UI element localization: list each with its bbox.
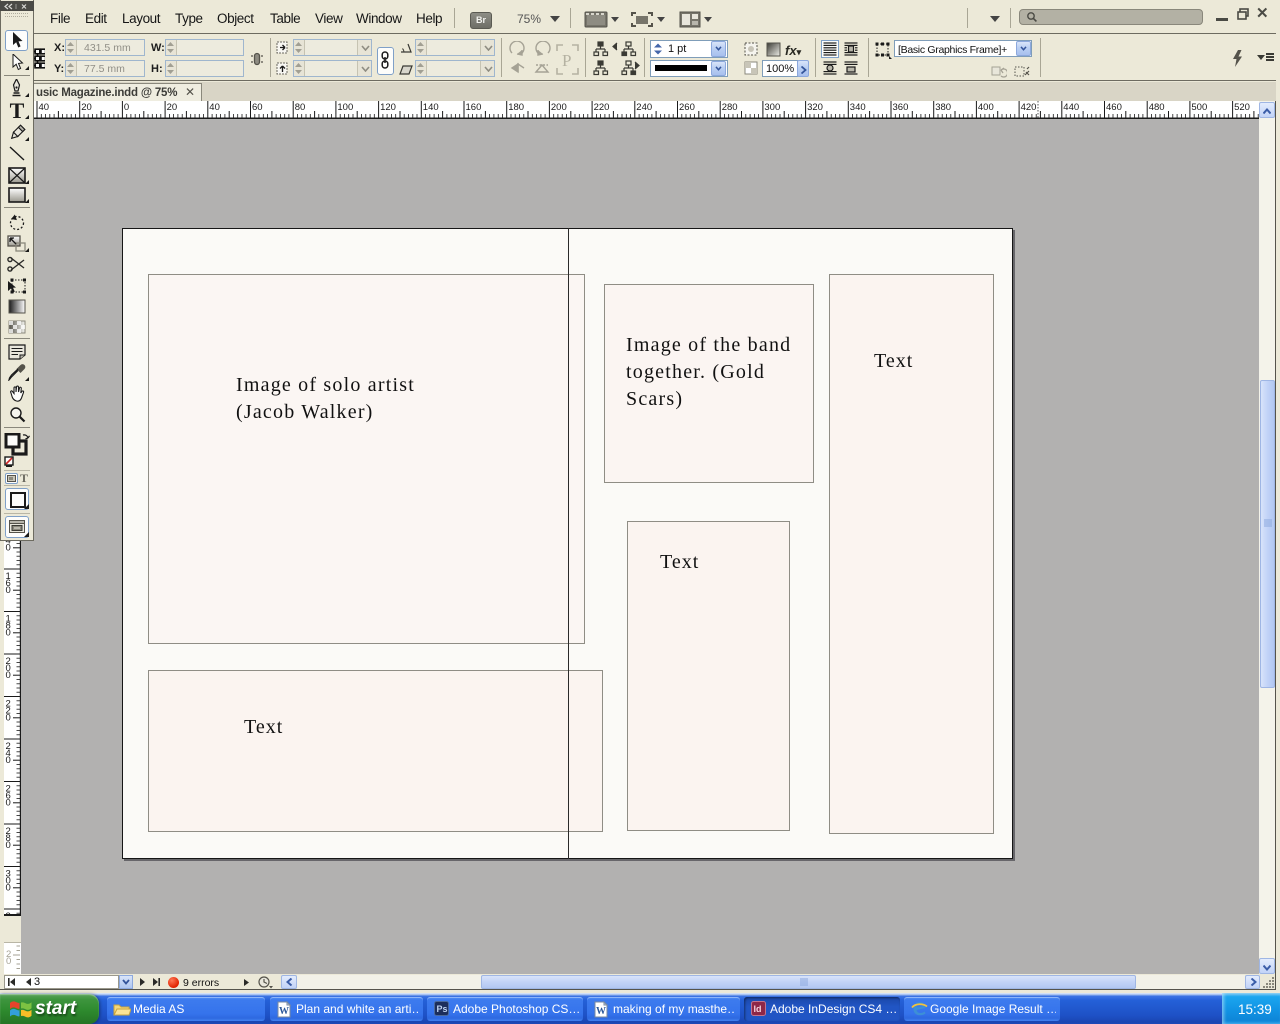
svg-text:Ps: Ps xyxy=(437,1004,448,1014)
svg-text:0: 0 xyxy=(6,883,11,894)
svg-text:160: 160 xyxy=(466,102,482,113)
svg-text:0: 0 xyxy=(124,102,129,113)
svg-text:40: 40 xyxy=(209,102,220,113)
svg-text:520: 520 xyxy=(1234,102,1250,113)
svg-text:W: W xyxy=(279,1006,289,1017)
svg-text:0: 0 xyxy=(6,543,11,554)
svg-text:480: 480 xyxy=(1149,102,1165,113)
svg-text:0: 0 xyxy=(6,755,11,766)
svg-text:0: 0 xyxy=(6,628,11,639)
svg-text:0: 0 xyxy=(6,840,11,851)
svg-text:280: 280 xyxy=(722,102,738,113)
svg-text:380: 380 xyxy=(935,102,951,113)
svg-text:Id: Id xyxy=(754,1004,762,1014)
svg-text:0: 0 xyxy=(6,585,11,596)
svg-text:220: 220 xyxy=(594,102,610,113)
svg-text:20: 20 xyxy=(167,102,178,113)
svg-text:W: W xyxy=(596,1006,606,1017)
svg-text:P: P xyxy=(562,51,571,70)
svg-text:80: 80 xyxy=(295,102,306,113)
svg-text:100: 100 xyxy=(337,102,353,113)
svg-text:360: 360 xyxy=(893,102,909,113)
svg-text:500: 500 xyxy=(1191,102,1207,113)
svg-text:200: 200 xyxy=(551,102,567,113)
svg-text:40: 40 xyxy=(39,102,50,113)
svg-text:0: 0 xyxy=(6,798,11,809)
svg-text:240: 240 xyxy=(636,102,652,113)
svg-text:140: 140 xyxy=(423,102,439,113)
svg-text:440: 440 xyxy=(1063,102,1079,113)
svg-text:20: 20 xyxy=(81,102,92,113)
svg-text:0: 0 xyxy=(6,713,11,724)
svg-text:60: 60 xyxy=(252,102,263,113)
svg-text:320: 320 xyxy=(807,102,823,113)
svg-text:300: 300 xyxy=(764,102,780,113)
svg-text:400: 400 xyxy=(978,102,994,113)
svg-text:420: 420 xyxy=(1021,102,1037,113)
svg-text:460: 460 xyxy=(1106,102,1122,113)
svg-text:260: 260 xyxy=(679,102,695,113)
svg-text:0: 0 xyxy=(6,670,11,681)
svg-text:120: 120 xyxy=(380,102,396,113)
svg-text:180: 180 xyxy=(508,102,524,113)
svg-text:340: 340 xyxy=(850,102,866,113)
